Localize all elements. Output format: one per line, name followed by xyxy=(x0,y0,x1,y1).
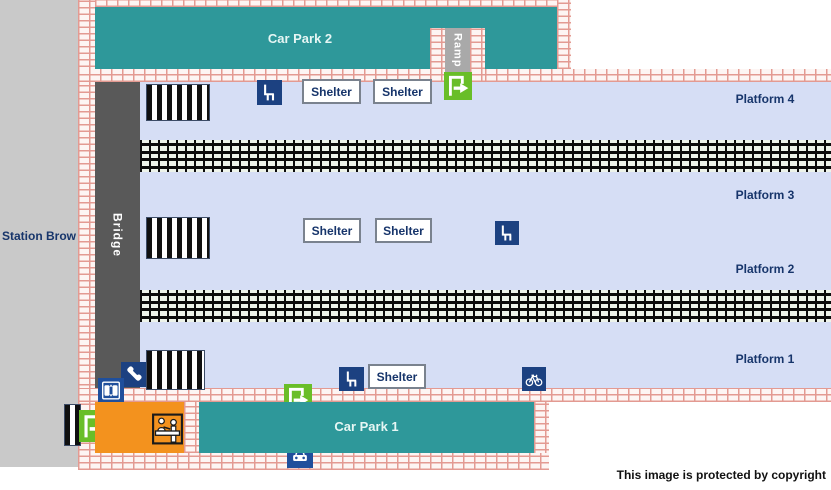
platform-3-label: Platform 3 xyxy=(700,188,830,202)
seat-icon xyxy=(495,221,519,245)
copyright-notice: This image is protected by copyright xyxy=(617,468,826,482)
crossing-island-platform xyxy=(146,217,210,259)
railway-track-south xyxy=(140,290,831,322)
wall-platform-1-south xyxy=(78,388,831,402)
lift-icon xyxy=(98,378,124,403)
crossing-platform-1 xyxy=(146,350,205,390)
shelter-platform-1: Shelter xyxy=(368,364,426,389)
ramp: Ramp xyxy=(445,28,470,72)
station-map: Station Brow Car Park 2 Ramp Bridge Plat… xyxy=(0,0,831,490)
shelter-platform-4-west: Shelter xyxy=(302,79,361,104)
bridge: Bridge xyxy=(95,82,140,388)
railway-track-north xyxy=(140,140,831,172)
ramp-wall-west xyxy=(430,28,445,82)
shelter-island-east: Shelter xyxy=(375,218,432,243)
wall-car-park-2-north xyxy=(95,0,557,7)
seat-icon xyxy=(339,367,364,391)
wall-ticket-office-east xyxy=(184,402,199,453)
wall-car-park-2-east xyxy=(557,0,571,69)
platform-2-label: Platform 2 xyxy=(700,262,830,276)
shelter-platform-4-east: Shelter xyxy=(373,79,432,104)
crossing-platform-4 xyxy=(146,84,210,121)
exit-icon xyxy=(444,72,472,100)
street-label: Station Brow xyxy=(0,229,78,243)
seat-icon xyxy=(257,80,282,105)
bicycle-icon xyxy=(522,367,546,391)
platform-4-label: Platform 4 xyxy=(700,92,830,106)
shelter-island-west: Shelter xyxy=(303,218,361,243)
wall-south xyxy=(78,453,549,470)
car-park-1-label: Car Park 1 xyxy=(199,419,534,434)
ramp-wall-east xyxy=(470,28,485,82)
ticket-office-icon xyxy=(151,413,184,445)
platform-1-label: Platform 1 xyxy=(700,352,830,366)
phone-icon xyxy=(121,362,146,387)
